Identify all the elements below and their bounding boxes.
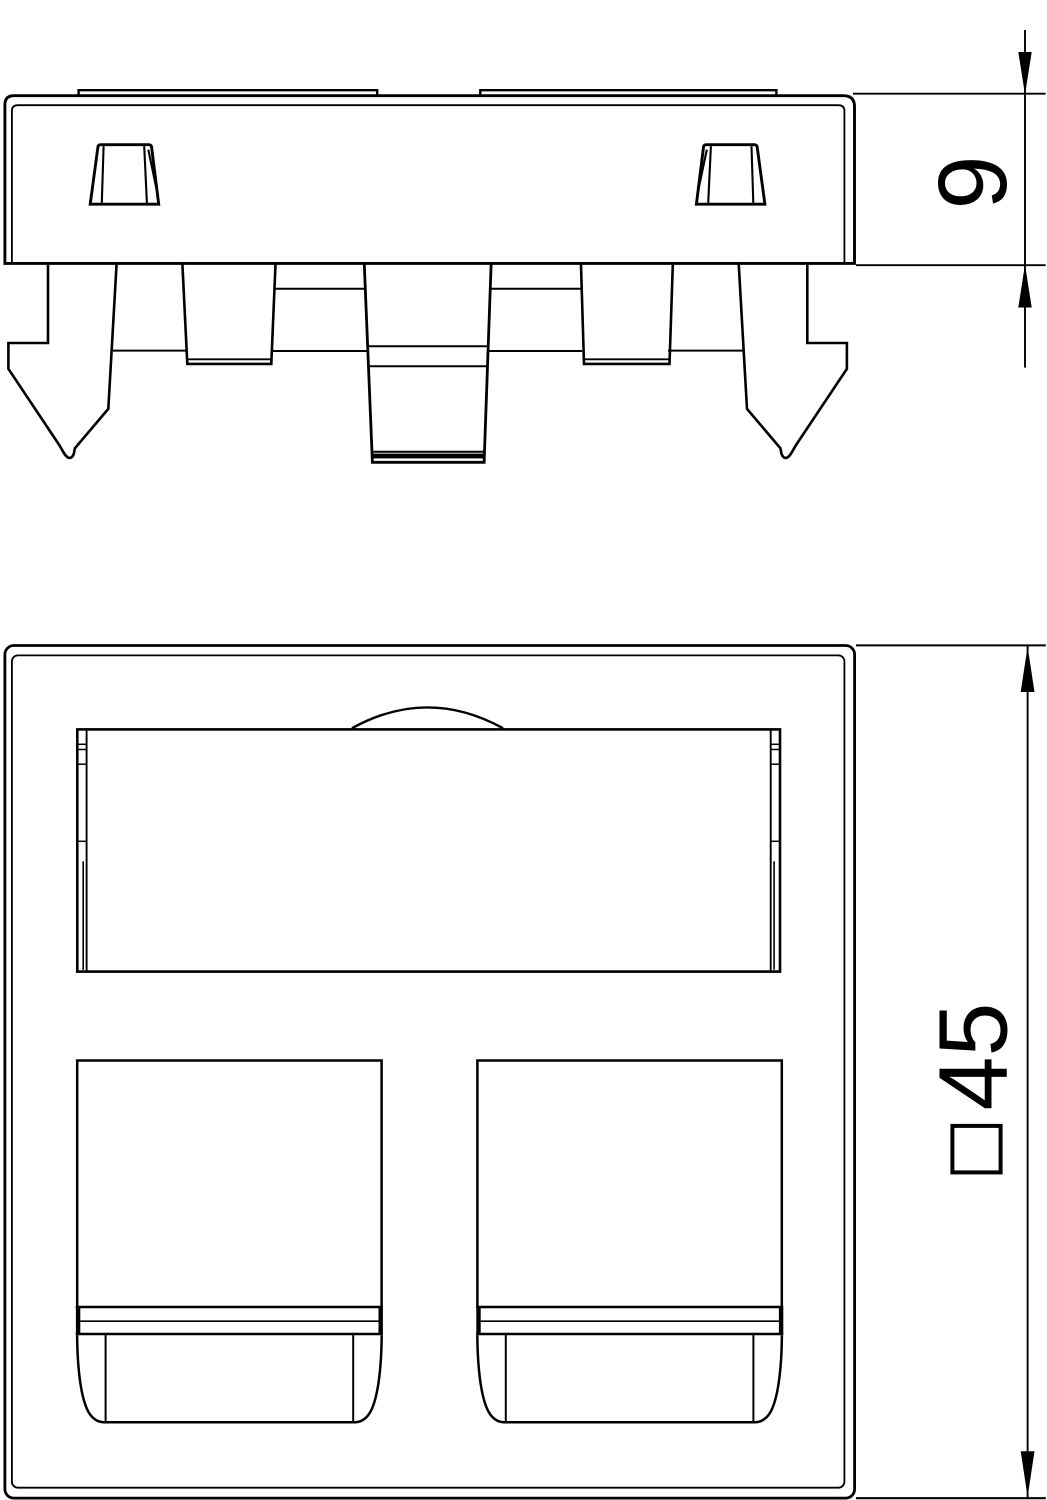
svg-text:45: 45 <box>918 1003 1027 1111</box>
svg-text:9: 9 <box>918 156 1027 210</box>
